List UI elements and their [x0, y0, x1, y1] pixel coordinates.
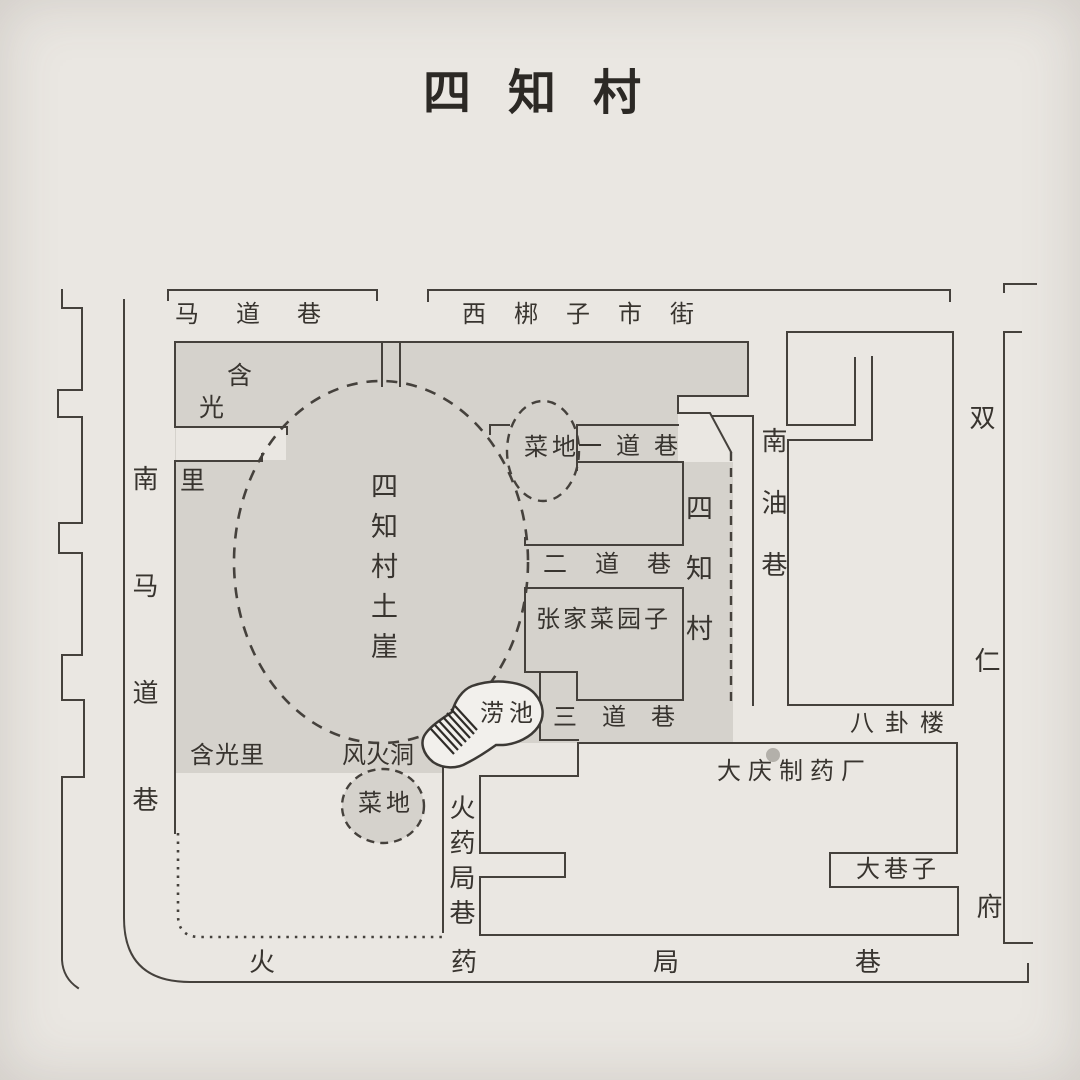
street-label-erdaoxiang: 二道巷	[543, 553, 699, 577]
place-label-daqing-zhiyaochang: 大庆制药厂	[717, 760, 872, 784]
street-label-hanguang-char3: 里	[180, 469, 205, 494]
street-label-sandaoxiang: 三道巷	[553, 706, 700, 730]
map-page: 四知村 马道巷 西梆子市街 一道巷 二道巷 三道巷 张家菜园子 八卦楼 涝池 风…	[0, 0, 1080, 1080]
street-label-hanguang-char1: 含	[227, 364, 252, 389]
street-label-yidaoxiang: 一道巷	[578, 435, 692, 459]
place-label-bagualou: 八卦楼	[850, 712, 955, 736]
street-label-shuangrenfu-char2: 仁	[972, 647, 998, 673]
street-label-shuangrenfu-char1: 双	[967, 404, 993, 430]
place-label-caidi-top: 菜地	[524, 436, 580, 460]
madaoxiang-bracket	[168, 290, 377, 300]
map-canvas	[0, 0, 1080, 1080]
street-label-daxiangzi: 大巷子	[856, 858, 940, 882]
dotted-south-boundary	[178, 833, 443, 937]
place-label-sizhicun: 四知村	[683, 494, 710, 674]
west-buildings-outline	[58, 290, 84, 988]
street-label-nan-ma-dao-xiang: 南马道巷	[130, 465, 156, 893]
xibangzi-bracket	[428, 290, 950, 301]
street-label-hanguangli: 含光里	[190, 744, 265, 768]
bagualou-block	[787, 332, 953, 705]
place-label-fenghuodong: 风火洞	[342, 744, 414, 768]
street-label-nanyouxiang: 南油巷	[759, 427, 785, 613]
street-label-shuangrenfu-char3: 府	[974, 893, 1000, 919]
street-label-huoyaojuxiang-vertical: 火药局巷	[447, 794, 473, 934]
topright-bracket	[1004, 284, 1036, 292]
place-label-laochi: 涝池	[480, 702, 538, 726]
place-label-sizhicun-tuya: 四知村土崖	[368, 472, 395, 672]
street-label-hanguang-char2: 光	[199, 396, 224, 421]
street-label-huoyaojuxiang-bottom: 火药局巷	[249, 950, 1057, 976]
page-title: 四知村	[423, 70, 678, 118]
place-label-caidi-bottom: 菜地	[358, 792, 414, 816]
shuangrenfu-street-line	[1004, 332, 1032, 943]
bagualou-alley	[787, 357, 872, 440]
place-label-zhangjia-caiyuanzi: 张家菜园子	[536, 608, 671, 632]
street-label-madaoxiang: 马道巷	[175, 303, 358, 327]
street-label-xibangzi-shijie: 西梆子市街	[462, 303, 722, 327]
